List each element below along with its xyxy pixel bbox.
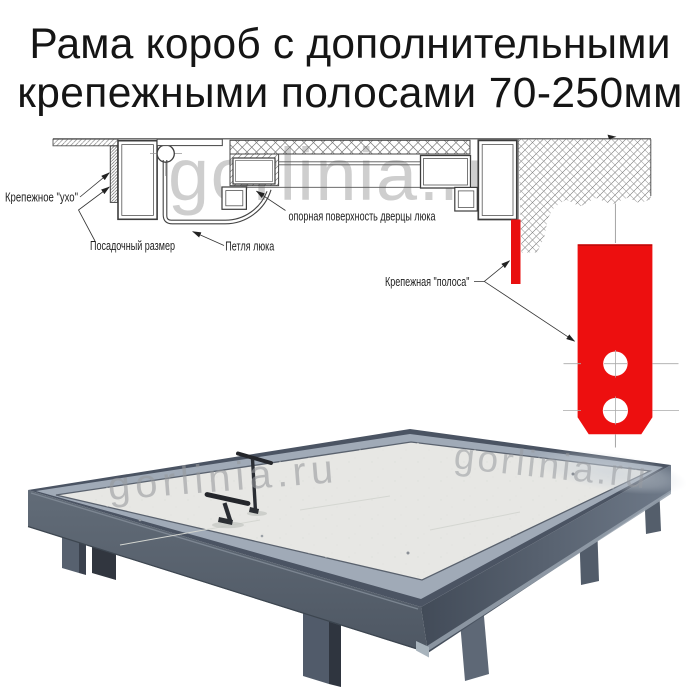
svg-text:опорная поверхность дверцы люк: опорная поверхность дверцы люка — [289, 210, 436, 224]
svg-text:Посадочный размер: Посадочный размер — [90, 239, 175, 253]
svg-text:Крепежное "ухо": Крепежное "ухо" — [5, 191, 78, 205]
svg-text:Крепежная "полоса": Крепежная "полоса" — [385, 275, 470, 289]
svg-text:Петля люка: Петля люка — [225, 240, 274, 254]
